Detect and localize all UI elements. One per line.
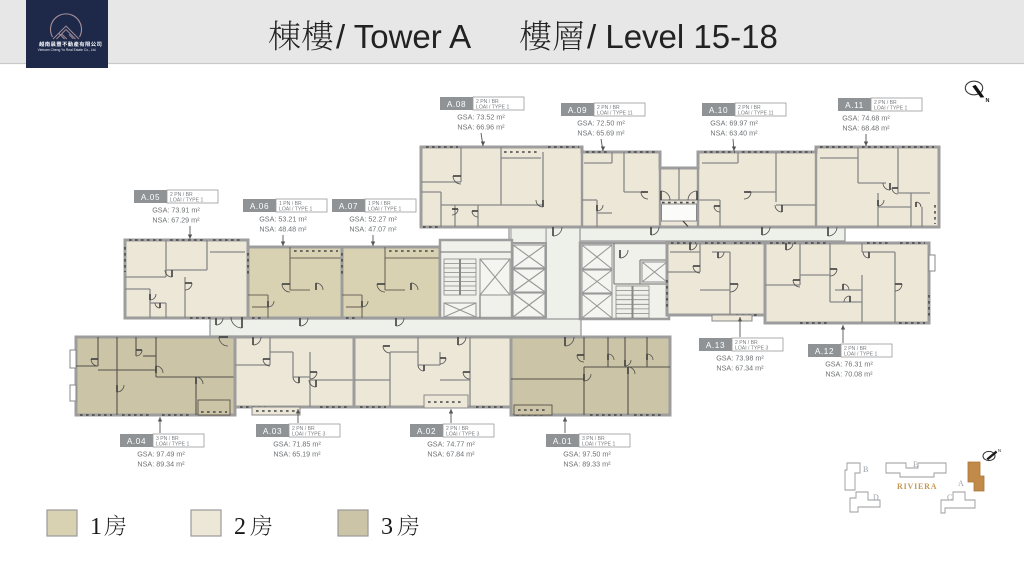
svg-text:LOAI / TYPE 1: LOAI / TYPE 1 bbox=[170, 198, 203, 204]
svg-text:GSA: 73.91 m²: GSA: 73.91 m² bbox=[152, 206, 200, 215]
svg-text:LOAI / TYPE 1: LOAI / TYPE 1 bbox=[476, 105, 509, 111]
svg-text:NSA: 89.34 m²: NSA: 89.34 m² bbox=[137, 460, 185, 469]
svg-text:C: C bbox=[947, 493, 952, 502]
svg-text:NSA: 89.33 m²: NSA: 89.33 m² bbox=[563, 460, 611, 469]
svg-text:GSA: 74.77 m²: GSA: 74.77 m² bbox=[427, 440, 475, 449]
svg-text:D: D bbox=[873, 493, 879, 502]
svg-text:GSA: 69.97 m²: GSA: 69.97 m² bbox=[710, 119, 758, 128]
svg-text:LOAI / TYPE 1: LOAI / TYPE 1 bbox=[844, 352, 877, 358]
svg-text:NSA: 67.84 m²: NSA: 67.84 m² bbox=[427, 450, 475, 459]
svg-text:GSA: 97.50 m²: GSA: 97.50 m² bbox=[563, 450, 611, 459]
svg-text:A.10: A.10 bbox=[709, 106, 728, 115]
svg-text:GSA: 71.85 m²: GSA: 71.85 m² bbox=[273, 440, 321, 449]
svg-text:NSA: 47.07 m²: NSA: 47.07 m² bbox=[349, 225, 397, 234]
svg-text:/ Level 15-18: / Level 15-18 bbox=[587, 18, 778, 55]
svg-text:A.06: A.06 bbox=[250, 202, 269, 211]
svg-text:2: 2 bbox=[234, 514, 246, 540]
svg-text:B: B bbox=[863, 465, 868, 474]
svg-text:GSA: 73.52 m²: GSA: 73.52 m² bbox=[457, 113, 505, 122]
svg-text:N: N bbox=[986, 98, 990, 104]
svg-text:NSA: 65.19 m²: NSA: 65.19 m² bbox=[273, 450, 321, 459]
svg-text:NSA: 65.69 m²: NSA: 65.69 m² bbox=[577, 129, 625, 138]
svg-text:NSA: 67.29 m²: NSA: 67.29 m² bbox=[152, 216, 200, 225]
svg-text:A.01: A.01 bbox=[553, 437, 572, 446]
svg-text:E: E bbox=[913, 460, 918, 469]
svg-text:A.02: A.02 bbox=[417, 427, 436, 436]
svg-text:/ Tower A: / Tower A bbox=[336, 18, 471, 55]
svg-text:GSA: 72.50 m²: GSA: 72.50 m² bbox=[577, 119, 625, 128]
svg-text:RIVIERA: RIVIERA bbox=[897, 482, 937, 491]
svg-text:LOAI / TYPE 1: LOAI / TYPE 1 bbox=[582, 442, 615, 448]
svg-text:GSA: 52.27 m²: GSA: 52.27 m² bbox=[349, 215, 397, 224]
svg-text:1: 1 bbox=[90, 514, 102, 540]
svg-text:NSA: 48.48 m²: NSA: 48.48 m² bbox=[259, 225, 307, 234]
svg-text:A.13: A.13 bbox=[706, 341, 725, 350]
svg-text:LOAI / TYPE 1: LOAI / TYPE 1 bbox=[279, 207, 312, 213]
svg-text:LOAI / TYPE 11: LOAI / TYPE 11 bbox=[597, 111, 633, 117]
svg-text:NSA: 63.40 m²: NSA: 63.40 m² bbox=[710, 129, 758, 138]
svg-text:N: N bbox=[998, 448, 1001, 453]
svg-text:LOAI / TYPE 1: LOAI / TYPE 1 bbox=[156, 442, 189, 448]
svg-text:A.12: A.12 bbox=[815, 347, 834, 356]
svg-text:LOAI / TYPE 1: LOAI / TYPE 1 bbox=[368, 207, 401, 213]
svg-text:A.08: A.08 bbox=[447, 100, 466, 109]
svg-text:A.11: A.11 bbox=[845, 101, 864, 110]
svg-text:LOAI / TYPE 3: LOAI / TYPE 3 bbox=[446, 432, 479, 438]
svg-text:A.07: A.07 bbox=[339, 202, 358, 211]
svg-text:GSA: 97.49 m²: GSA: 97.49 m² bbox=[137, 450, 185, 459]
svg-text:3: 3 bbox=[381, 514, 393, 540]
svg-text:NSA: 68.48 m²: NSA: 68.48 m² bbox=[842, 124, 890, 133]
svg-text:A.03: A.03 bbox=[263, 427, 282, 436]
svg-text:NSA: 67.34 m²: NSA: 67.34 m² bbox=[716, 364, 764, 373]
svg-text:A.09: A.09 bbox=[568, 106, 587, 115]
svg-text:GSA: 73.98 m²: GSA: 73.98 m² bbox=[716, 354, 764, 363]
svg-text:A.04: A.04 bbox=[127, 437, 146, 446]
svg-text:A: A bbox=[958, 479, 964, 488]
svg-text:GSA: 53.21 m²: GSA: 53.21 m² bbox=[259, 215, 307, 224]
svg-text:LOAI / TYPE 3: LOAI / TYPE 3 bbox=[292, 432, 325, 438]
svg-text:NSA: 70.08 m²: NSA: 70.08 m² bbox=[825, 370, 873, 379]
svg-text:LOAI / TYPE 1: LOAI / TYPE 1 bbox=[874, 106, 907, 112]
svg-text:LOAI / TYPE 11: LOAI / TYPE 11 bbox=[738, 111, 774, 117]
svg-text:GSA: 74.68 m²: GSA: 74.68 m² bbox=[842, 114, 890, 123]
svg-text:Vietnam Cheng Yu Real Estate C: Vietnam Cheng Yu Real Estate Co., Ltd. bbox=[38, 48, 97, 52]
svg-text:A.05: A.05 bbox=[141, 193, 160, 202]
svg-text:LOAI / TYPE 3: LOAI / TYPE 3 bbox=[735, 346, 768, 352]
svg-text:GSA: 76.31 m²: GSA: 76.31 m² bbox=[825, 360, 873, 369]
svg-text:NSA: 66.96 m²: NSA: 66.96 m² bbox=[457, 123, 505, 132]
